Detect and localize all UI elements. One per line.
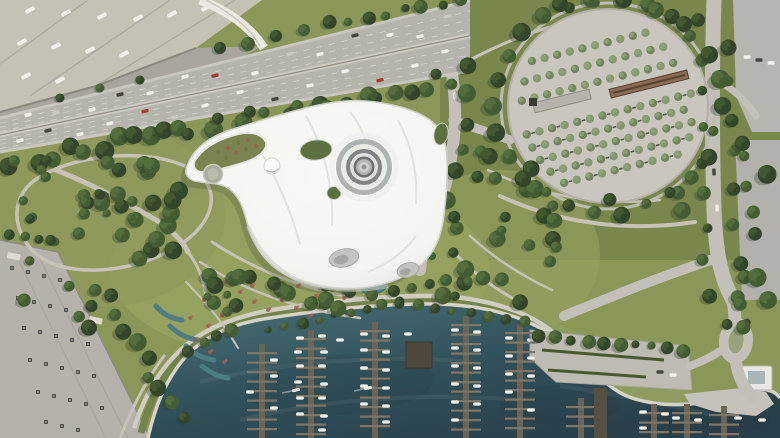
tree-crown — [497, 78, 504, 85]
garage-vent-dot — [55, 335, 57, 337]
oval-tree-highlight — [624, 164, 629, 169]
oval-tree-highlight — [649, 157, 654, 162]
garage-vent-dot — [59, 279, 61, 281]
boat — [694, 419, 702, 422]
tree-crown — [418, 303, 423, 308]
tree-crown — [552, 205, 557, 210]
green-roof-planting — [244, 147, 248, 151]
boat — [246, 391, 254, 394]
garage-vent-dot — [29, 359, 31, 361]
tree-crown — [411, 287, 416, 292]
tree-crown — [216, 335, 221, 340]
tree-crown — [594, 211, 600, 217]
tree-crown — [147, 377, 152, 382]
flower-patch — [253, 283, 256, 286]
green-roof-planting — [224, 156, 228, 160]
garage-vent-dot — [45, 363, 47, 365]
garage-vent-dot — [37, 391, 39, 393]
tree-crown — [754, 232, 760, 238]
tree-crown — [268, 329, 271, 332]
garage-vent-dot — [101, 407, 103, 409]
boat — [382, 369, 390, 372]
tree-crown — [98, 193, 102, 197]
oval-tree-highlight — [660, 140, 665, 145]
tree-crown — [431, 255, 435, 259]
boat — [318, 397, 326, 400]
tree-crown — [9, 234, 14, 239]
pier-finger — [505, 380, 535, 382]
tree-crown — [325, 298, 332, 305]
boat — [318, 335, 326, 338]
tree-crown — [91, 305, 96, 310]
oval-tree-highlight — [657, 63, 662, 68]
pier-finger — [247, 400, 277, 402]
boat — [382, 387, 390, 390]
tree-crown — [482, 277, 489, 284]
pier-finger — [505, 427, 535, 429]
boat — [296, 365, 304, 368]
tree-crown — [471, 312, 475, 316]
tree-crown — [214, 284, 222, 292]
parked-car — [657, 370, 664, 373]
garage-vent-dot — [65, 309, 67, 311]
oval-tree-highlight — [573, 176, 578, 181]
oval-tree-highlight — [622, 53, 627, 58]
tree-crown — [82, 151, 89, 158]
oval-tree-highlight — [600, 141, 605, 146]
tree-crown — [99, 87, 103, 91]
oval-tree-highlight — [599, 112, 604, 117]
tree-crown — [45, 176, 50, 181]
flower-patch — [225, 359, 228, 362]
tree-crown — [106, 213, 110, 217]
tree-crown — [466, 91, 474, 99]
flower-patch — [317, 293, 320, 296]
oval-tree-highlight — [574, 147, 579, 152]
tree-crown — [170, 211, 178, 219]
oval-tree-highlight — [623, 150, 628, 155]
tree-crown — [697, 19, 703, 25]
tree-crown — [249, 111, 254, 116]
tree-crown — [151, 164, 158, 171]
tree-crown — [669, 191, 674, 196]
green-roof-planting — [226, 146, 230, 150]
boat — [527, 357, 535, 360]
pier-finger — [296, 348, 326, 350]
oval-tree-highlight — [594, 78, 599, 83]
boat — [451, 401, 459, 404]
boat — [294, 381, 302, 384]
oval-tree-highlight — [629, 33, 634, 38]
oval-tree-highlight — [619, 72, 624, 77]
oval-tree-highlight — [625, 135, 630, 140]
oval-tree-highlight — [668, 110, 673, 115]
garage-vent-dot — [77, 429, 79, 431]
oculus-ring — [362, 165, 367, 170]
tree-crown — [703, 126, 707, 130]
tree-crown — [496, 237, 503, 244]
tree-crown — [275, 35, 280, 40]
scene-svg — [0, 0, 780, 438]
oval-tree-highlight — [571, 66, 576, 71]
tree-crown — [726, 323, 731, 328]
garage-vent-dot — [87, 343, 89, 345]
oval-tree-highlight — [662, 96, 667, 101]
oval-tree-highlight — [612, 109, 617, 114]
tree-crown — [452, 311, 455, 314]
pier-finger — [451, 372, 481, 374]
pier-finger — [451, 410, 481, 412]
tree-crown — [477, 176, 482, 181]
tree-crown — [435, 73, 440, 78]
tree-crown — [689, 35, 694, 40]
tree-crown — [172, 248, 180, 256]
tree-crown — [603, 342, 609, 348]
oval-tree-highlight — [635, 146, 640, 151]
oval-tree-highlight — [632, 69, 637, 74]
oval-tree-highlight — [560, 165, 565, 170]
tree-crown — [731, 119, 737, 125]
boat — [451, 329, 459, 332]
tree-crown — [337, 307, 344, 314]
boat — [473, 331, 481, 334]
pier-finger — [566, 425, 596, 427]
tree-crown — [620, 343, 626, 349]
tree-crown — [350, 312, 354, 316]
tree-crown — [756, 276, 764, 284]
pier-finger — [672, 431, 702, 433]
garage-vent-dot — [69, 399, 71, 401]
boat — [318, 429, 326, 432]
flower-patch — [209, 323, 212, 326]
tree-crown — [152, 201, 159, 208]
tree-crown — [702, 90, 706, 94]
tree-crown — [110, 294, 116, 300]
tree-crown — [666, 347, 672, 353]
oval-tree-highlight — [609, 56, 614, 61]
oval-tree-highlight — [638, 131, 643, 136]
tree-crown — [550, 260, 555, 265]
tree-crown — [425, 88, 432, 95]
tree-crown — [171, 198, 179, 206]
oval-tree-highlight — [647, 47, 652, 52]
boat — [451, 419, 459, 422]
boat — [505, 355, 513, 358]
pier-finger — [360, 416, 390, 418]
tree-crown — [745, 185, 750, 190]
ramp-opening — [529, 98, 537, 106]
tree-crown — [708, 53, 716, 61]
tree-crown — [635, 344, 639, 348]
oval-tree-highlight — [586, 173, 591, 178]
pier-finger — [247, 371, 277, 373]
garage-vent-dot — [45, 421, 47, 423]
tree-crown — [740, 262, 747, 269]
tree-crown — [529, 244, 534, 249]
pier-finger — [451, 429, 481, 431]
terrace-pad-inner — [207, 168, 218, 179]
pier-finger — [709, 414, 739, 416]
garage-vent-dot — [33, 301, 35, 303]
pier-finger — [451, 343, 481, 345]
boat — [382, 335, 390, 338]
boat — [473, 385, 481, 388]
boat — [473, 367, 481, 370]
tree-crown — [367, 308, 371, 312]
boat — [318, 365, 326, 368]
tree-crown — [107, 161, 113, 167]
tree-crown — [204, 342, 209, 347]
tree-crown — [132, 200, 137, 205]
oval-tree-highlight — [617, 36, 622, 41]
oval-tree-highlight — [687, 90, 692, 95]
tree-crown — [138, 257, 145, 264]
dark-pier — [594, 388, 607, 438]
tree-crown — [744, 155, 749, 160]
oval-tree-highlight — [546, 72, 551, 77]
tree-crown — [733, 188, 739, 194]
pier-finger — [709, 424, 739, 426]
tree-crown — [23, 200, 27, 204]
tree-crown — [395, 91, 402, 98]
oval-tree-highlight — [567, 135, 572, 140]
pier-finger — [451, 391, 481, 393]
tree-crown — [609, 198, 615, 204]
tree-crown — [227, 311, 232, 316]
tree-crown — [741, 142, 748, 149]
tree-crown — [501, 278, 507, 284]
flower-patch — [211, 349, 214, 352]
tree-crown — [466, 123, 472, 129]
tree-crown — [303, 322, 308, 327]
boat — [404, 333, 412, 336]
tree-crown — [84, 213, 89, 218]
flower-patch — [255, 299, 258, 302]
tree-crown — [273, 282, 279, 288]
tree-crown — [620, 213, 628, 221]
pier-finger — [247, 362, 277, 364]
tree-crown — [554, 336, 560, 342]
tree-crown — [117, 193, 124, 200]
pier-main — [578, 398, 584, 438]
oval-tree-highlight — [607, 75, 612, 80]
tree-crown — [739, 303, 745, 309]
tree-crown — [555, 246, 560, 251]
tree-crown — [347, 21, 351, 25]
tree-crown — [187, 350, 192, 355]
oval-tree-highlight — [556, 88, 561, 93]
tree-crown — [709, 295, 716, 302]
tree-crown — [25, 236, 29, 240]
tree-crown — [217, 117, 222, 122]
tree-crown — [139, 79, 143, 83]
oval-tree-highlight — [660, 43, 665, 48]
tree-crown — [52, 158, 59, 165]
oval-tree-highlight — [650, 128, 655, 133]
oval-tree-highlight — [634, 50, 639, 55]
pier-finger — [247, 428, 277, 430]
oval-tree-highlight — [537, 157, 542, 162]
tree-crown — [135, 218, 142, 225]
tree-crown — [131, 216, 135, 220]
oval-tree-highlight — [649, 100, 654, 105]
oval-tree-highlight — [548, 125, 553, 130]
oval-tree-highlight — [655, 113, 660, 118]
tree-crown — [50, 239, 55, 244]
boat — [451, 383, 459, 386]
boat — [758, 419, 766, 422]
pier-finger — [247, 352, 277, 354]
garage-vent-dot — [27, 271, 29, 273]
tree-crown — [767, 298, 775, 306]
oval-tree-highlight — [521, 78, 526, 83]
oval-tree-highlight — [554, 138, 559, 143]
tree-crown — [227, 294, 231, 298]
oval-tree-highlight — [675, 122, 680, 127]
tree-crown — [88, 326, 95, 333]
garage-vent-dot — [43, 275, 45, 277]
tree-crown — [59, 97, 63, 101]
boat — [320, 415, 328, 418]
tree-crown — [453, 252, 458, 257]
pier-finger — [566, 416, 596, 418]
oval-tree-highlight — [644, 66, 649, 71]
tree-crown — [570, 340, 574, 344]
tree-crown — [454, 169, 461, 176]
oval-tree-highlight — [528, 58, 533, 63]
oval-tree-highlight — [598, 170, 603, 175]
pier-finger — [639, 422, 669, 424]
tree-crown — [320, 319, 323, 322]
oval-tree-highlight — [597, 156, 602, 161]
tree-crown — [505, 216, 510, 221]
oval-tree-highlight — [543, 91, 548, 96]
moored-barge — [406, 342, 432, 368]
tree-crown — [13, 160, 18, 165]
pier-finger — [360, 425, 390, 427]
boat — [505, 391, 513, 394]
oval-tree-highlight — [581, 82, 586, 87]
oval-tree-highlight — [675, 93, 680, 98]
garage-vent-dot — [11, 267, 13, 269]
boat — [360, 333, 368, 336]
tree-crown — [682, 350, 688, 356]
boat — [473, 403, 481, 406]
tree-crown — [38, 238, 42, 242]
boat — [320, 383, 328, 386]
oval-tree-highlight — [569, 85, 574, 90]
tree-crown — [467, 64, 475, 72]
oval-tree-highlight — [648, 143, 653, 148]
boat — [527, 375, 535, 378]
parked-car — [670, 373, 677, 376]
tree-crown — [568, 204, 574, 210]
tree-crown — [713, 130, 718, 135]
tree-crown — [677, 191, 683, 197]
pier-finger — [709, 433, 739, 435]
pier-finger — [505, 332, 535, 334]
tree-crown — [727, 46, 734, 53]
oval-tree-highlight — [617, 122, 622, 127]
tree-crown — [492, 104, 500, 112]
tree-crown — [708, 155, 716, 163]
green-roof-planting — [246, 138, 250, 142]
tree-crown — [68, 285, 73, 290]
oval-tree-highlight — [610, 153, 615, 158]
oval-tree-highlight — [566, 48, 571, 53]
boat — [672, 417, 680, 420]
oval-tree-highlight — [670, 60, 675, 65]
pier-finger — [505, 370, 535, 372]
tree-crown — [385, 15, 389, 19]
tree-crown — [530, 167, 538, 175]
oval-tree-highlight — [624, 106, 629, 111]
oval-tree-highlight — [661, 154, 666, 159]
pier-finger — [451, 353, 481, 355]
boat — [360, 403, 368, 406]
tree-crown — [238, 275, 245, 282]
oval-tree-highlight — [604, 125, 609, 130]
oval-tree-highlight — [586, 115, 591, 120]
tree-crown — [78, 232, 84, 238]
boat — [270, 375, 278, 378]
oval-tree-highlight — [518, 97, 523, 102]
pier-finger — [247, 381, 277, 383]
tree-crown — [488, 316, 493, 321]
tree-crown — [118, 169, 125, 176]
tree-crown — [707, 227, 711, 231]
garage-vent-dot — [39, 331, 41, 333]
tree-crown — [94, 289, 100, 295]
boat — [294, 351, 302, 354]
tree-crown — [494, 177, 500, 183]
oval-tree-highlight — [533, 75, 538, 80]
boat — [639, 411, 647, 414]
tree-crown — [284, 325, 288, 329]
boat — [639, 427, 647, 430]
tree-crown — [766, 173, 774, 181]
tree-crown — [651, 345, 655, 349]
pier-finger — [296, 405, 326, 407]
tree-crown — [46, 160, 51, 165]
garage-vent-dot — [61, 367, 63, 369]
tree-crown — [287, 291, 294, 298]
tree-crown — [702, 259, 707, 264]
pier-finger — [566, 406, 596, 408]
pier-finger — [296, 386, 326, 388]
parked-car — [744, 55, 751, 58]
oval-tree-highlight — [612, 138, 617, 143]
tree-crown — [451, 83, 456, 88]
boat — [661, 413, 669, 416]
tree-crown — [114, 313, 119, 318]
garage-vent-dot — [53, 395, 55, 397]
parked-car — [756, 58, 763, 61]
tree-crown — [368, 17, 374, 23]
green-roof-planting — [216, 150, 220, 154]
pier-finger — [296, 424, 326, 426]
tree-crown — [101, 201, 109, 209]
oval-tree-highlight — [597, 59, 602, 64]
car — [712, 168, 716, 175]
pier-finger — [451, 334, 481, 336]
boathouse-skylight — [748, 371, 765, 384]
oval-tree-highlight — [579, 132, 584, 137]
pier-finger — [360, 397, 390, 399]
aerial-rendering — [0, 0, 780, 438]
tree-crown — [150, 248, 157, 255]
tree-crown — [462, 149, 467, 154]
